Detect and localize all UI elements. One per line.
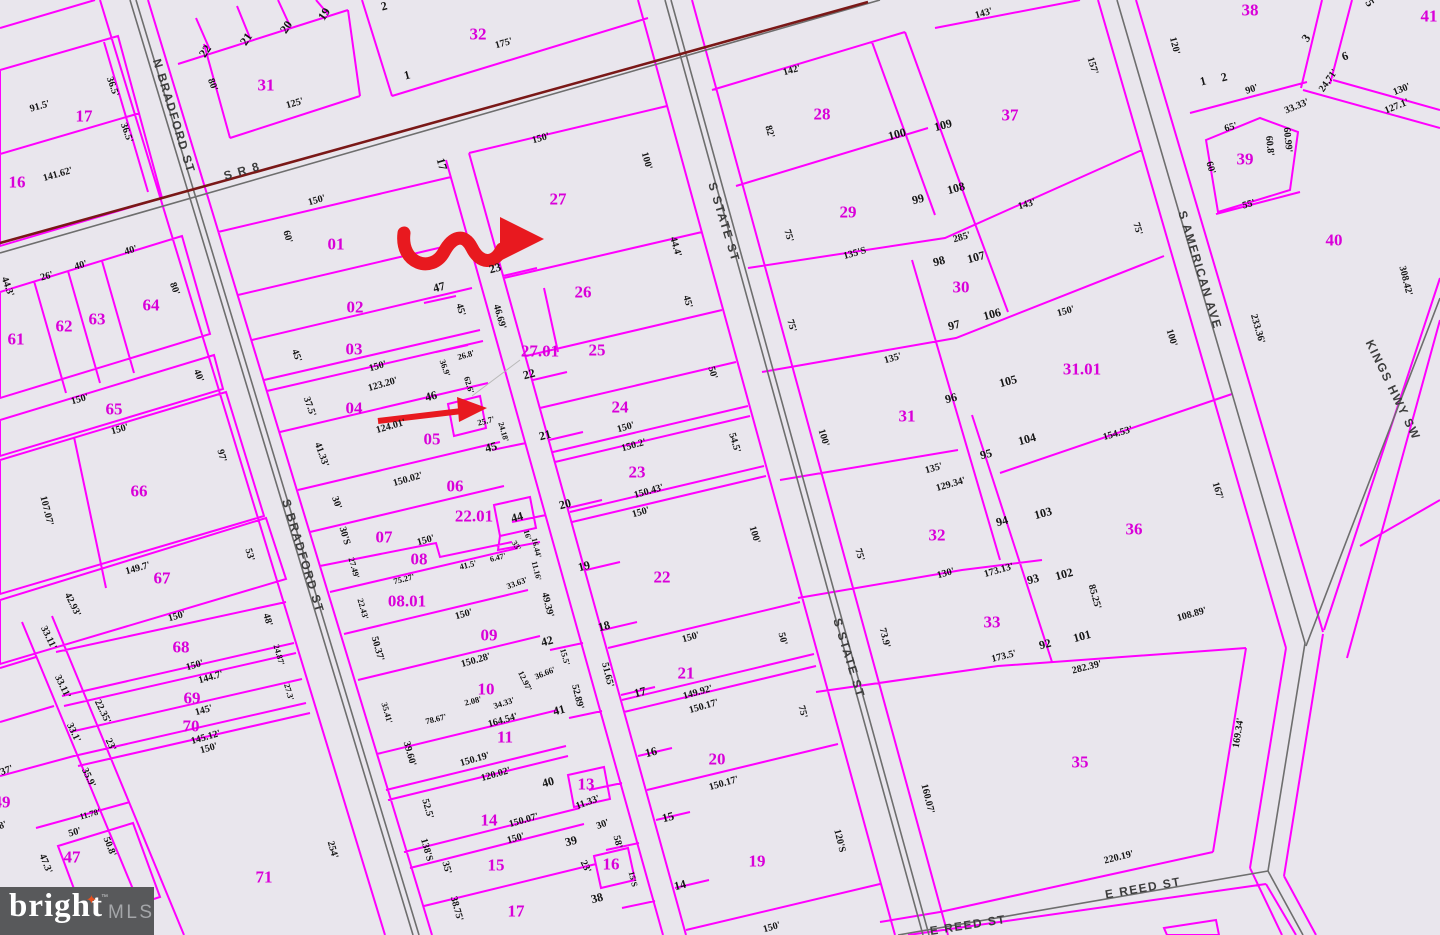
parcel-number: 71 [256, 869, 273, 886]
dimension-label: 48' [260, 612, 273, 627]
parcel-number: 17 [508, 903, 525, 920]
parcel-number: 08.01 [388, 593, 426, 610]
parcel-number: 31.01 [1063, 361, 1101, 378]
parcel-number: 23 [629, 464, 646, 481]
dimension-label: 35' [439, 860, 452, 875]
parcel-number: 70 [183, 718, 200, 735]
parcel-number: 06 [447, 478, 464, 495]
parcel-number: 08 [411, 551, 428, 568]
parcel-number: 47 [64, 849, 81, 866]
parcel-number: 41 [1421, 8, 1438, 25]
logo-mls-text: MLS [108, 902, 155, 924]
parcel-number: 16 [9, 174, 26, 191]
parcel-number: 25 [589, 342, 606, 359]
parcel-number: 30 [953, 279, 970, 296]
parcel-boundaries [0, 0, 1440, 935]
parcel-number: 33 [984, 614, 1001, 631]
parcel-number: 22.01 [455, 508, 493, 525]
parcel-number: 22 [654, 569, 671, 586]
parcel-number: 38 [1242, 2, 1259, 19]
parcel-number: 32 [929, 527, 946, 544]
parcel-number: 39 [1237, 151, 1254, 168]
dimension-label: 60.8' [1263, 135, 1275, 156]
parcel-number: 21 [678, 665, 695, 682]
dimension-label: 45' [680, 294, 693, 309]
parcel-number: 65 [106, 401, 123, 418]
parcel-number: 16 [603, 856, 620, 873]
parcel-number: 15 [488, 857, 505, 874]
parcel-number: 01 [328, 236, 345, 253]
parcel-number: 61 [8, 331, 25, 348]
parcel-number: 19 [749, 853, 766, 870]
dimension-label: 60.99' [1281, 127, 1294, 153]
logo-star-icon: ✦ [86, 892, 97, 908]
squiggly-arrow-icon [404, 217, 544, 264]
sr8-highway-line [0, 2, 868, 243]
parcel-number: 40 [1326, 232, 1343, 249]
dimension-label: 58' [611, 835, 624, 850]
parcel-number: 69 [184, 690, 201, 707]
dimension-label: 50' [776, 632, 789, 647]
parcel-number: 09 [481, 627, 498, 644]
parcel-number: 02 [347, 299, 364, 316]
parcel-number: 14 [481, 812, 498, 829]
parcel-number: 68 [173, 639, 190, 656]
parcel-number: 03 [346, 341, 363, 358]
parcel-number: 37 [1002, 107, 1019, 124]
parcel-number: 27 [550, 191, 567, 208]
parcel-leader-line [472, 360, 520, 396]
logo-trademark: ™ [101, 894, 108, 901]
parcel-number: 67 [154, 570, 171, 587]
parcel-number: 31 [258, 77, 275, 94]
parcel-number: 20 [709, 751, 726, 768]
parcel-number: 04 [346, 400, 363, 417]
parcel-number: 11 [497, 729, 513, 746]
parcel-number: 26 [575, 284, 592, 301]
parcel-number: 07 [376, 529, 393, 546]
parcel-number: 13 [578, 776, 595, 793]
parcel-number: 63 [89, 311, 106, 328]
parcel-number: 28 [814, 106, 831, 123]
parcel-number: 62 [56, 318, 73, 335]
parcel-number: 31 [899, 408, 916, 425]
dimension-label: 97' [214, 448, 227, 463]
parcel-number: 17 [76, 108, 93, 125]
map-canvas [0, 0, 1440, 935]
parcel-number: 49 [0, 794, 11, 811]
parcel-number: 66 [131, 483, 148, 500]
parcel-number: 32 [470, 26, 487, 43]
parcel-number: 64 [143, 297, 160, 314]
parcel-number: 35 [1072, 754, 1089, 771]
dimension-label: 53' [242, 547, 255, 562]
parcel-number: 24 [612, 399, 629, 416]
parcel-number: 36 [1126, 521, 1143, 538]
parcel-number: 29 [840, 204, 857, 221]
parcel-number: 27.01 [521, 343, 559, 360]
bright-mls-logo: bright ✦ ™ MLS [0, 887, 154, 935]
road-centerlines [0, 0, 1440, 935]
dimension-label: 75' [796, 705, 809, 720]
parcel-map: N BRADFORD STS R 8S STATE STS BRADFORD S… [0, 0, 1440, 935]
parcel-number: 05 [424, 431, 441, 448]
